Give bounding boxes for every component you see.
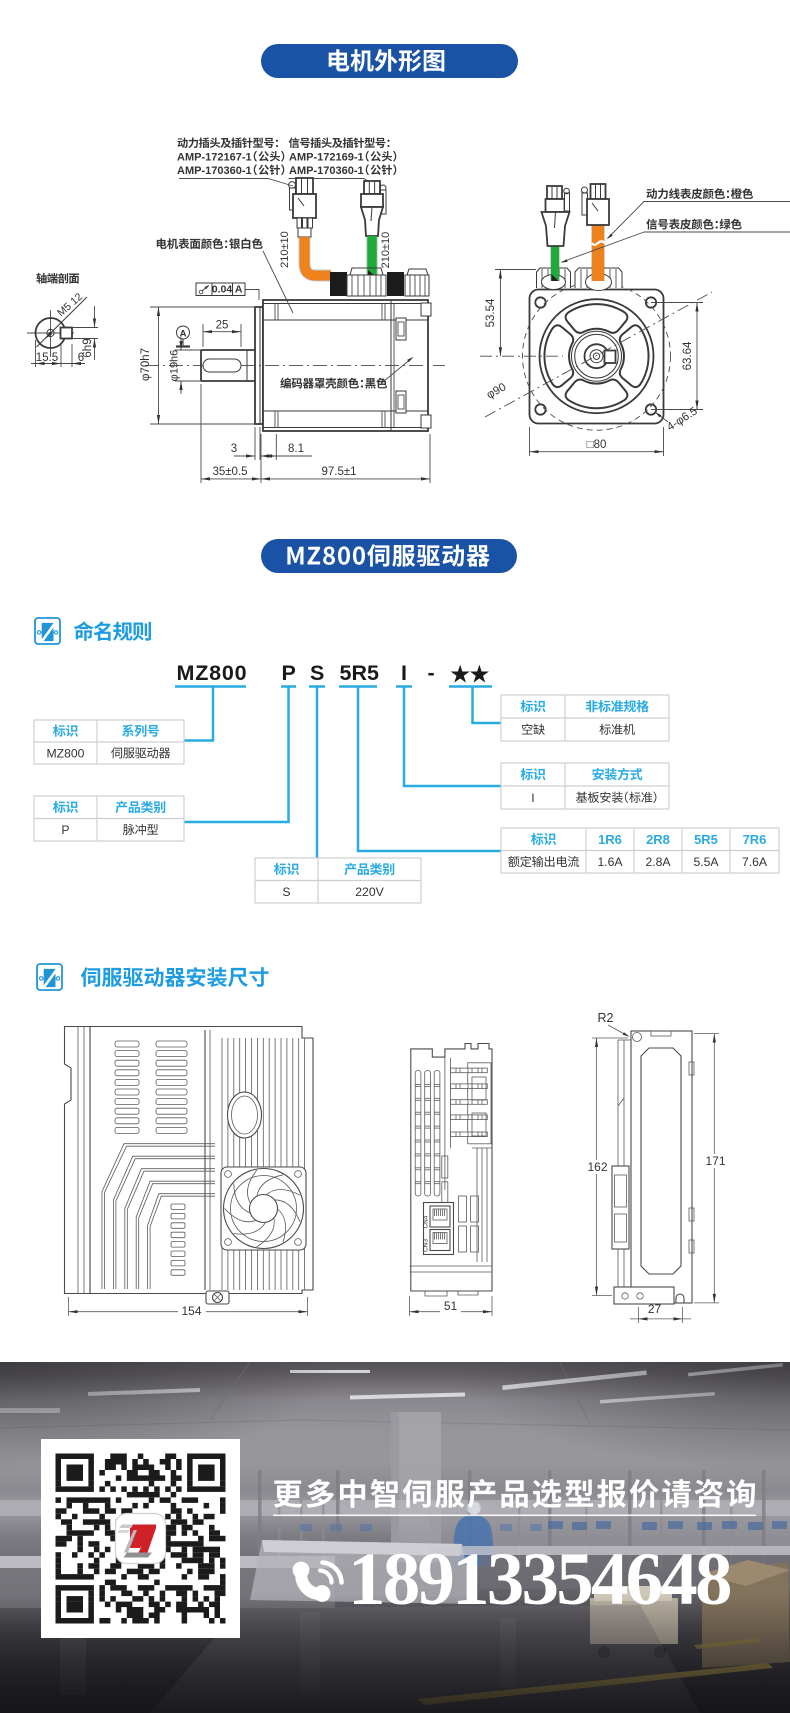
svg-text:6h9: 6h9 — [82, 338, 94, 357]
svg-text:AMP-172167-1: AMP-172167-1 — [177, 152, 252, 164]
svg-text:CN3: CN3 — [423, 1239, 430, 1252]
svg-text:A: A — [235, 284, 243, 296]
svg-text:★★: ★★ — [451, 663, 490, 687]
svg-text:1R6: 1R6 — [598, 832, 622, 847]
svg-text:154: 154 — [181, 1304, 201, 1318]
svg-text:18913354648: 18913354648 — [348, 1538, 731, 1621]
svg-text:1.6A: 1.6A — [597, 855, 623, 869]
svg-text:2R8: 2R8 — [646, 832, 670, 847]
svg-text:P: P — [61, 823, 69, 837]
svg-text:CN4: CN4 — [423, 1215, 430, 1228]
svg-text:2.8A: 2.8A — [645, 855, 671, 869]
svg-text:5R5: 5R5 — [694, 832, 718, 847]
svg-text:97.5±1: 97.5±1 — [321, 466, 356, 478]
svg-text:φ70h7: φ70h7 — [140, 348, 152, 381]
svg-text:R2: R2 — [598, 1011, 614, 1025]
svg-text:25: 25 — [216, 320, 229, 332]
svg-text:15.5: 15.5 — [36, 352, 58, 364]
svg-text:27: 27 — [648, 1302, 662, 1316]
svg-text:7.6A: 7.6A — [742, 855, 768, 869]
svg-text:63.64: 63.64 — [682, 341, 694, 370]
svg-text:171: 171 — [705, 1154, 725, 1168]
svg-text:210±10: 210±10 — [279, 231, 291, 268]
svg-text:3: 3 — [231, 443, 237, 455]
svg-text:φ90: φ90 — [485, 381, 509, 401]
svg-text:7R6: 7R6 — [743, 832, 767, 847]
svg-text:I: I — [531, 791, 534, 805]
svg-text:35±0.5: 35±0.5 — [212, 466, 247, 478]
svg-text:51: 51 — [444, 1299, 458, 1313]
svg-text:S: S — [310, 661, 324, 685]
svg-text:5R5: 5R5 — [340, 661, 379, 685]
svg-text:MZ800: MZ800 — [177, 661, 248, 685]
svg-text:MZ800: MZ800 — [47, 746, 85, 760]
svg-text:I: I — [401, 661, 407, 685]
svg-text:S: S — [282, 885, 290, 899]
svg-text:AMP-170360-1: AMP-170360-1 — [289, 165, 364, 177]
svg-text:□80: □80 — [587, 439, 607, 451]
svg-text:AMP-170360-1: AMP-170360-1 — [177, 165, 252, 177]
svg-text:220V: 220V — [355, 885, 384, 899]
svg-text:162: 162 — [587, 1160, 607, 1174]
svg-text:P: P — [282, 661, 296, 685]
svg-text:210±10: 210±10 — [380, 232, 392, 269]
svg-text:φ19h6: φ19h6 — [169, 350, 181, 382]
svg-text:M5 12: M5 12 — [55, 291, 85, 319]
svg-text:AMP-172169-1: AMP-172169-1 — [289, 152, 364, 164]
svg-text:-: - — [428, 661, 435, 685]
svg-text:5.5A: 5.5A — [693, 855, 719, 869]
svg-text:53.54: 53.54 — [485, 298, 497, 327]
svg-text:8.1: 8.1 — [288, 443, 304, 455]
svg-text:0.04: 0.04 — [212, 284, 233, 296]
